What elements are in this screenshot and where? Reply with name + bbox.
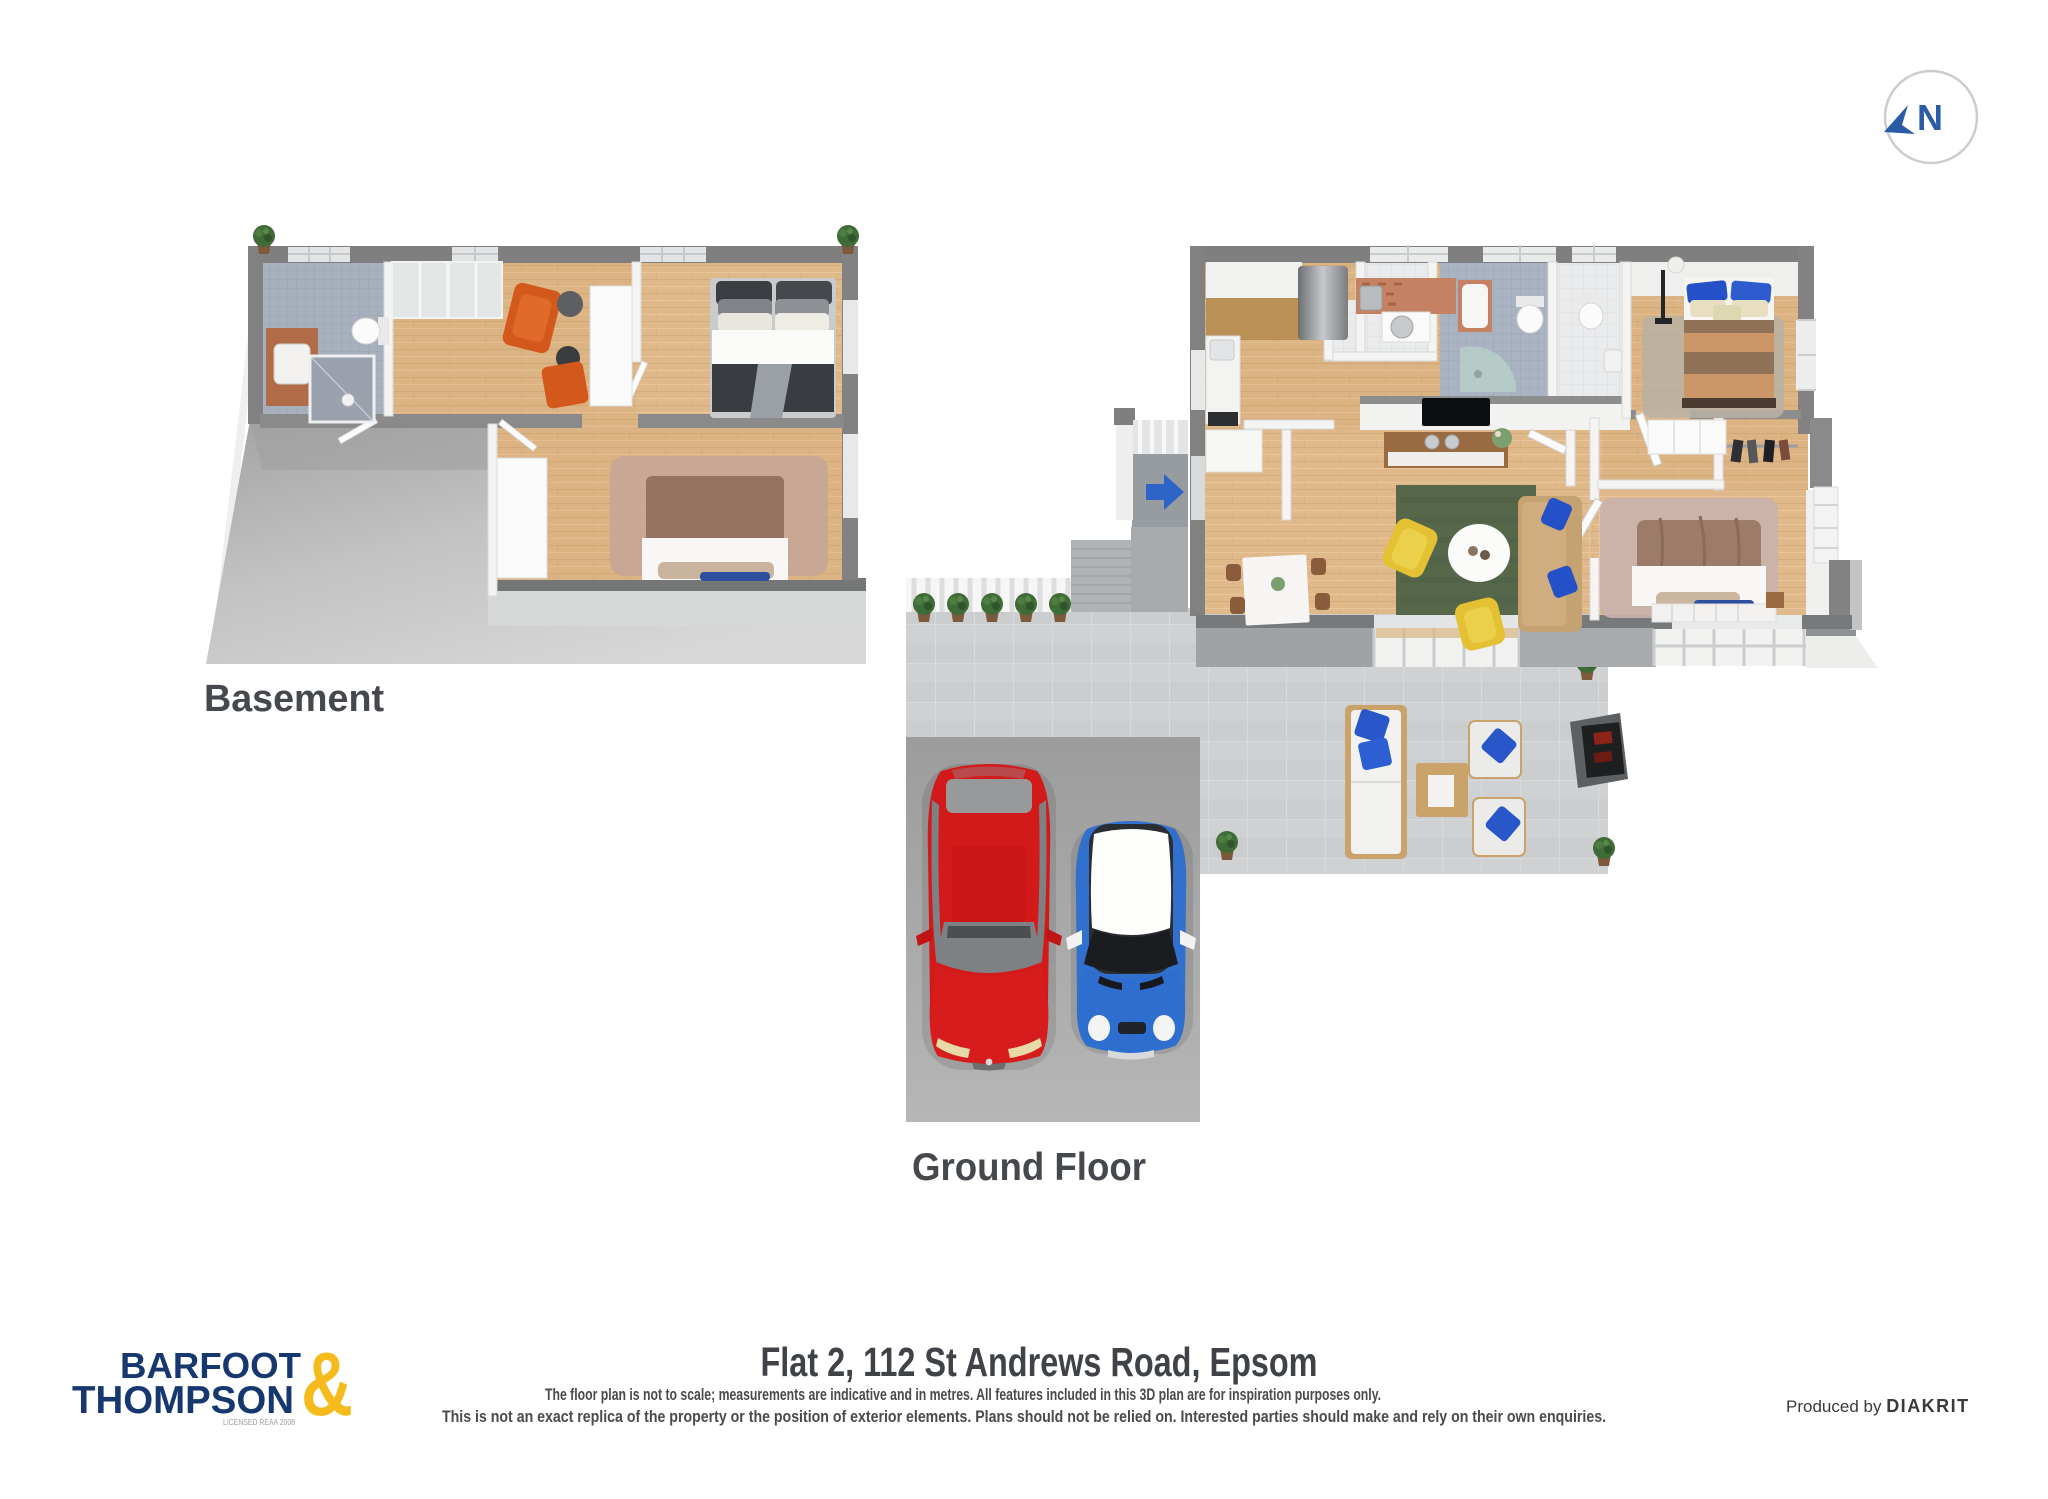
svg-text:Flat 2, 112 St Andrews Road, E: Flat 2, 112 St Andrews Road, Epsom — [761, 1339, 1318, 1385]
svg-text:Ground Floor: Ground Floor — [912, 1146, 1146, 1189]
svg-text:N: N — [1917, 97, 1943, 138]
svg-text:This is not an exact replica o: This is not an exact replica of the prop… — [442, 1407, 1606, 1426]
svg-text:THOMPSON: THOMPSON — [72, 1379, 294, 1422]
svg-text:The floor plan is not to scale: The floor plan is not to scale; measurem… — [545, 1385, 1381, 1404]
svg-text:Basement: Basement — [204, 678, 384, 720]
svg-text:Produced by DIAKRIT: Produced by DIAKRIT — [1786, 1396, 1970, 1416]
svg-text:&: & — [301, 1335, 353, 1435]
svg-text:LICENSED REAA 2008: LICENSED REAA 2008 — [223, 1417, 295, 1427]
